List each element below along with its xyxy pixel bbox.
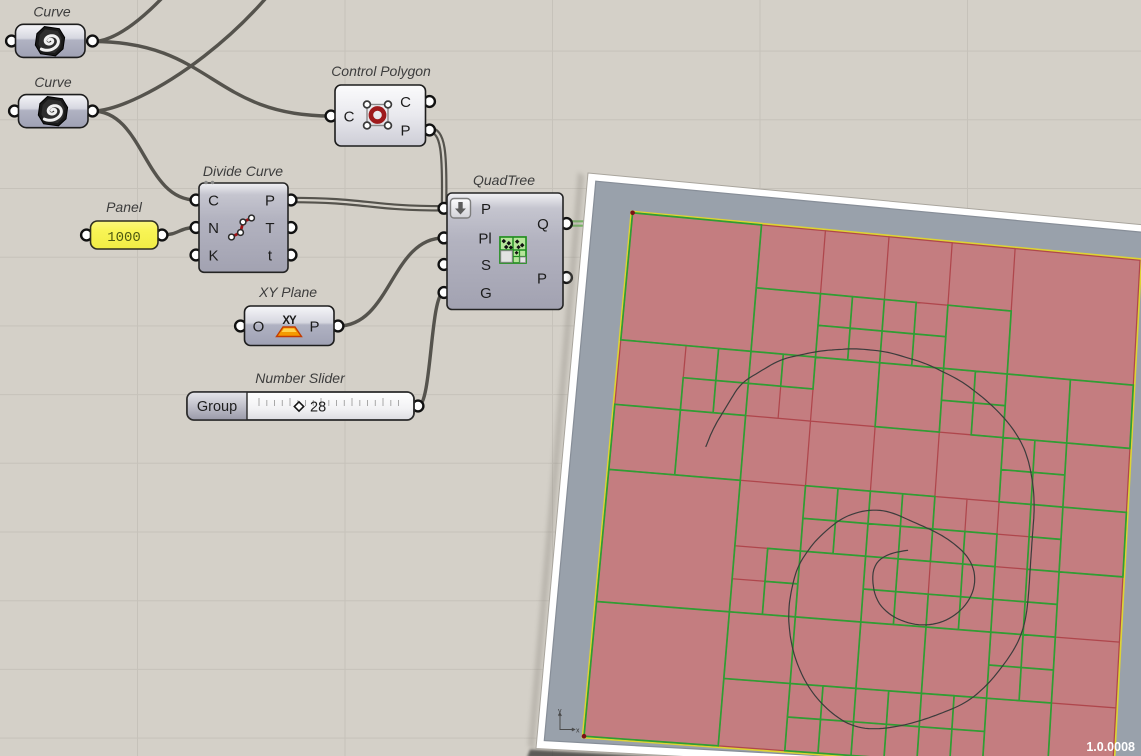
svg-text:XY: XY [282, 315, 297, 327]
svg-text:Group: Group [197, 399, 237, 415]
svg-text:P: P [265, 193, 275, 210]
svg-text:S: S [481, 257, 491, 274]
svg-text:28: 28 [310, 400, 326, 416]
svg-text:x: x [576, 728, 580, 735]
svg-text:P: P [309, 319, 319, 336]
svg-text:N: N [208, 220, 219, 237]
svg-text:Curve: Curve [34, 74, 72, 90]
svg-text:Control Polygon: Control Polygon [331, 63, 431, 79]
svg-text:P: P [400, 123, 410, 140]
svg-text:G: G [480, 285, 492, 302]
svg-text:C: C [400, 94, 411, 111]
svg-text:C: C [344, 109, 355, 126]
svg-text:Q: Q [537, 216, 549, 233]
svg-text:T: T [265, 220, 274, 237]
svg-text:P: P [481, 201, 491, 218]
svg-text:Pl: Pl [478, 230, 491, 247]
svg-text:Curve: Curve [33, 4, 71, 20]
svg-text:Divide Curve: Divide Curve [203, 163, 283, 179]
svg-text:O: O [253, 319, 265, 336]
svg-text:K: K [208, 248, 218, 265]
svg-text:P: P [537, 271, 547, 288]
svg-text:C: C [208, 193, 219, 210]
svg-text:1000: 1000 [107, 230, 141, 246]
svg-text:Panel: Panel [106, 199, 143, 215]
svg-text:y: y [558, 708, 562, 715]
svg-text:Number Slider: Number Slider [255, 370, 346, 386]
svg-text:QuadTree: QuadTree [473, 172, 535, 188]
svg-text:XY Plane: XY Plane [258, 284, 317, 300]
svg-text:1.0.0008: 1.0.0008 [1086, 740, 1135, 754]
